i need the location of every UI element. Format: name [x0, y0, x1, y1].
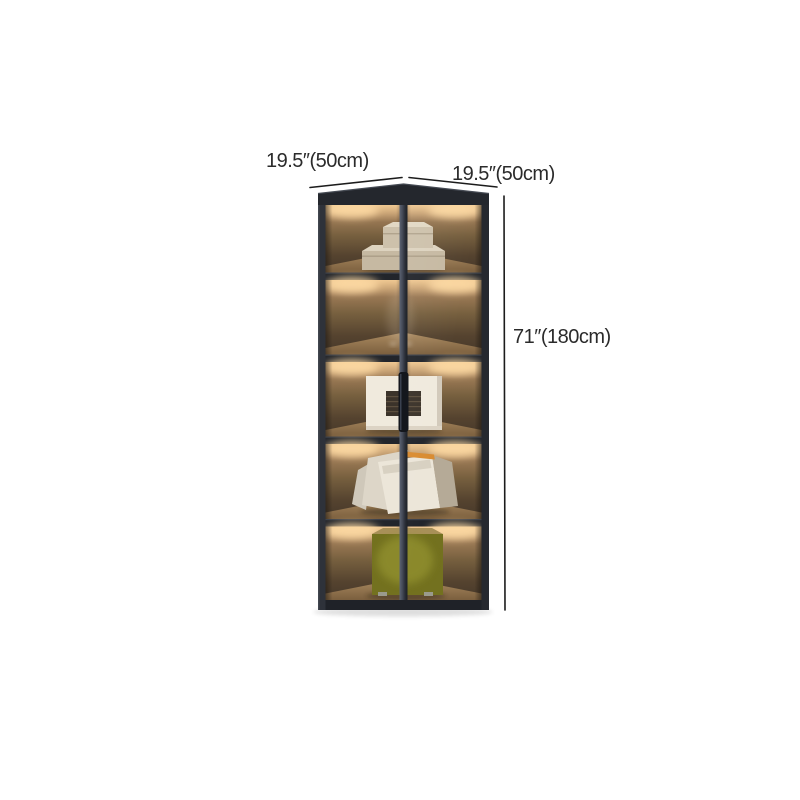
dim-label-height: 71″(180cm) — [513, 327, 611, 347]
dim-label-width-left: 19.5″(50cm) — [266, 151, 369, 171]
dim-label-width-right: 19.5″(50cm) — [452, 164, 555, 184]
cabinet-base-rail — [318, 600, 489, 610]
cabinet-illustration — [0, 0, 800, 800]
cabinet-right-stile — [482, 194, 490, 610]
dim-line-height — [504, 196, 505, 610]
product-image: 19.5″(50cm) 19.5″(50cm) 71″(180cm) — [0, 0, 800, 800]
cabinet — [318, 184, 489, 610]
cabinet-top — [318, 184, 489, 205]
door-handle-highlight — [400, 374, 402, 430]
glass-reflection — [408, 205, 482, 600]
left-stile-highlight — [318, 194, 320, 610]
